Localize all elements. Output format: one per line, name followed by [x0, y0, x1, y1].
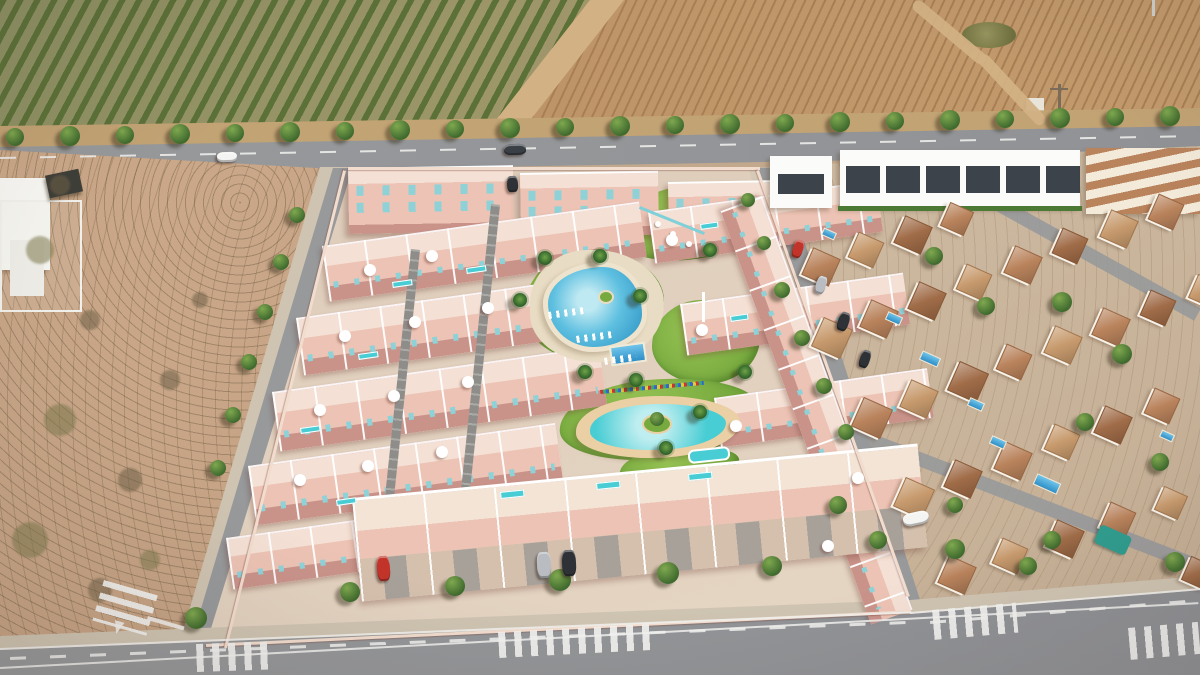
- palm-tree: [659, 441, 673, 455]
- car-red: [376, 556, 391, 582]
- garden-tree: [1151, 453, 1169, 471]
- roof-parasol: [730, 420, 742, 432]
- roof-parasol: [696, 324, 708, 336]
- garden-tree: [1019, 557, 1037, 575]
- street-tree: [289, 207, 305, 223]
- street-tree: [794, 330, 810, 346]
- roadside-tree: [830, 112, 850, 132]
- roof-parasol: [426, 250, 438, 262]
- roadside-tree: [886, 112, 904, 130]
- perimeter-wall-north: [348, 167, 760, 170]
- palm-tree: [538, 251, 552, 265]
- scrub-bush: [192, 292, 208, 308]
- palm-tree: [693, 405, 707, 419]
- field-post: [1152, 0, 1155, 16]
- palm-tree: [629, 373, 643, 387]
- roof-parasol: [436, 446, 448, 458]
- roadside-tree: [116, 126, 134, 144]
- roadside-tree: [1106, 108, 1124, 126]
- sun-loungers: [702, 292, 709, 322]
- palm-tree: [633, 289, 647, 303]
- garden-tree: [1052, 292, 1072, 312]
- car-dark: [561, 550, 576, 577]
- scrub-bush: [44, 404, 76, 436]
- street-tree: [273, 254, 289, 270]
- street-tree: [241, 354, 257, 370]
- modern-house-row: [840, 150, 1080, 208]
- roadside-tree: [390, 120, 410, 140]
- garden-tree: [925, 247, 943, 265]
- car-white: [217, 152, 237, 163]
- garden-tree: [1112, 344, 1132, 364]
- roadside-tree: [336, 122, 354, 140]
- palm-tree: [703, 243, 717, 257]
- aerial-development-render: [0, 0, 1200, 675]
- garden-tree: [1165, 552, 1185, 572]
- scrub-bush: [160, 370, 180, 390]
- roof-parasol: [362, 460, 374, 472]
- garden-tree: [977, 297, 995, 315]
- street-tree: [657, 562, 679, 584]
- street-tree: [1043, 531, 1061, 549]
- palm-tree: [738, 365, 752, 379]
- roadside-tree: [940, 110, 960, 130]
- street-tree: [774, 282, 790, 298]
- roadside-tree: [60, 126, 80, 146]
- roof-parasol: [852, 472, 864, 484]
- roadside-tree: [556, 118, 574, 136]
- roof-parasol: [409, 316, 421, 328]
- roof-parasol: [294, 474, 306, 486]
- garden-sculpture: [686, 241, 692, 247]
- roadside-tree: [446, 120, 464, 138]
- street-tree: [257, 304, 273, 320]
- street-tree: [185, 607, 207, 629]
- modern-white-house: [770, 156, 832, 208]
- palm-tree: [578, 365, 592, 379]
- roadside-tree: [1050, 108, 1070, 128]
- crosswalk: [1128, 622, 1200, 660]
- roof-parasol: [314, 404, 326, 416]
- roadside-tree: [500, 118, 520, 138]
- roof-parasol: [339, 330, 351, 342]
- roof-parasol: [482, 302, 494, 314]
- roadside-tree: [1160, 106, 1180, 126]
- van-dark: [504, 144, 526, 156]
- roadside-tree: [996, 110, 1014, 128]
- garden-tree: [1076, 413, 1094, 431]
- scrub-bush: [12, 522, 48, 558]
- street-tree: [762, 556, 782, 576]
- roof-parasol: [364, 264, 376, 276]
- street-tree: [816, 378, 832, 394]
- street-tree: [340, 582, 360, 602]
- car-silver: [536, 552, 551, 579]
- street-tree: [829, 496, 847, 514]
- street-tree: [210, 460, 226, 476]
- street-tree: [945, 539, 965, 559]
- roadside-tree: [6, 128, 24, 146]
- street-tree: [838, 424, 854, 440]
- roof-parasol: [462, 376, 474, 388]
- street-tree: [741, 193, 755, 207]
- street-tree: [757, 236, 771, 250]
- roadside-tree: [776, 114, 794, 132]
- roadside-tree: [226, 124, 244, 142]
- scrub-bush: [140, 550, 160, 570]
- roof-parasol: [388, 390, 400, 402]
- utility-pole-crossarm: [1050, 88, 1068, 90]
- lagoon-pool-island: [598, 290, 614, 304]
- roadside-tree: [170, 124, 190, 144]
- roadside-tree: [280, 122, 300, 142]
- scrub-bush: [80, 310, 100, 330]
- palm-tree: [513, 293, 527, 307]
- scrub-bush: [26, 236, 54, 264]
- scrub-bush: [50, 175, 70, 195]
- palm-tree: [593, 249, 607, 263]
- island-tree: [650, 412, 664, 426]
- garden-tree: [947, 497, 963, 513]
- garden-sculpture: [655, 221, 661, 227]
- scrub-bush: [118, 468, 142, 492]
- roof-parasol: [822, 540, 834, 552]
- street-tree: [445, 576, 465, 596]
- roadside-tree: [720, 114, 740, 134]
- car-dark: [507, 176, 519, 193]
- roadside-tree: [666, 116, 684, 134]
- garden-tree: [869, 531, 887, 549]
- street-tree: [225, 407, 241, 423]
- roof-parasol: [666, 234, 678, 246]
- roadside-tree: [610, 116, 630, 136]
